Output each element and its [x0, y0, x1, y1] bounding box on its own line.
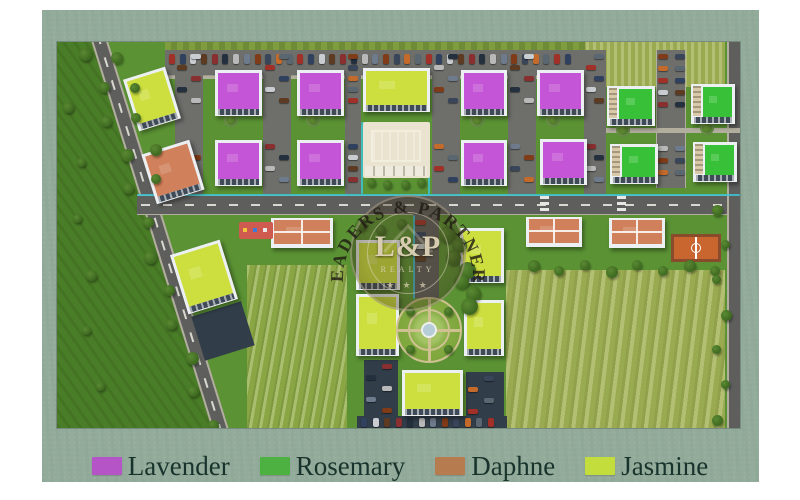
car [586, 65, 596, 70]
tree [712, 415, 723, 426]
car [458, 54, 464, 64]
parking-lot [364, 360, 398, 422]
parking-aisle [584, 50, 606, 194]
garden-fountain [421, 322, 437, 338]
palm-tree [401, 180, 410, 189]
car [465, 418, 471, 427]
court-surface [674, 237, 718, 259]
car [265, 166, 275, 171]
building-daphne [609, 218, 665, 248]
tree [712, 275, 721, 284]
car [675, 66, 685, 71]
car [511, 54, 517, 64]
rosemary-swatch [260, 457, 290, 475]
basketball-court [671, 234, 721, 262]
playground-equipment [243, 228, 247, 232]
car [191, 76, 201, 81]
building-jasmine [402, 370, 463, 416]
car [488, 418, 494, 427]
car [586, 166, 596, 171]
building-facade [610, 119, 652, 125]
tree [554, 266, 564, 276]
building-facade [218, 109, 259, 115]
legend-item-lavender: Lavender [92, 453, 230, 480]
court-circle [691, 243, 701, 253]
tree [63, 102, 74, 113]
daphne-swatch [435, 457, 465, 475]
legend-label: Daphne [471, 453, 555, 480]
tree [606, 266, 618, 278]
building-rosemary [610, 144, 658, 184]
building-jasmine [363, 68, 430, 112]
car [675, 90, 685, 95]
car [658, 66, 668, 71]
legend-item-rosemary: Rosemary [260, 453, 405, 480]
playground-equipment [263, 228, 267, 232]
car [348, 144, 358, 149]
car [501, 54, 507, 64]
car [348, 65, 358, 70]
car [404, 54, 410, 64]
parking-aisle [345, 50, 361, 194]
car [675, 158, 685, 163]
car [191, 98, 201, 103]
legend-label: Lavender [128, 453, 230, 480]
tree [144, 251, 157, 264]
car [265, 144, 275, 149]
tree [111, 52, 123, 64]
car [255, 54, 261, 64]
tree [208, 420, 219, 428]
tree [454, 274, 469, 289]
car [543, 54, 549, 64]
car [169, 54, 175, 64]
tree [528, 260, 540, 272]
garden-tree [444, 345, 453, 354]
car [372, 54, 378, 64]
building-facade [696, 175, 734, 181]
building-lavender [297, 70, 344, 116]
car [468, 409, 478, 414]
roof-lavender [464, 143, 504, 179]
building-facade [405, 409, 460, 415]
car [448, 76, 458, 81]
road-main-dash [141, 204, 740, 206]
car [524, 155, 534, 160]
car [366, 375, 376, 380]
car [658, 158, 668, 163]
brochure-card: LEADERS & PARTNERS L&P REALTY ★ ★ ★ [42, 10, 759, 482]
car [212, 54, 218, 64]
car [382, 386, 392, 391]
car [177, 65, 187, 70]
building-facade [300, 109, 341, 115]
tree [580, 260, 590, 270]
building-lavender [540, 139, 587, 185]
car [675, 54, 685, 59]
building-facade [366, 105, 427, 111]
car [407, 418, 413, 427]
roof-lavender [300, 143, 341, 179]
building-daphne [526, 217, 582, 247]
garden-tree [406, 307, 415, 316]
car [594, 54, 604, 59]
car [348, 87, 358, 92]
car [415, 256, 426, 261]
field-farm [247, 265, 347, 428]
roof-rosemary [705, 145, 734, 175]
roof-daphne [274, 220, 330, 244]
tree [99, 82, 110, 93]
building-facade [694, 117, 732, 123]
jasmine-swatch [585, 457, 615, 475]
utility-line [137, 194, 740, 196]
roof-lavender [543, 142, 584, 178]
car [348, 76, 358, 81]
palm-tree [367, 178, 376, 187]
car [297, 54, 303, 64]
crosswalk [617, 196, 626, 214]
building-rosemary [691, 84, 735, 124]
tree [73, 214, 82, 223]
car [383, 54, 389, 64]
tree [150, 144, 162, 156]
car [415, 232, 426, 237]
car [675, 170, 685, 175]
car [265, 54, 271, 64]
building-facade [359, 283, 397, 289]
car [594, 76, 604, 81]
car [394, 54, 400, 64]
car [448, 98, 458, 103]
car [565, 54, 571, 64]
car [191, 54, 201, 59]
legend: LavenderRosemaryDaphneJasmine [0, 448, 800, 484]
car [265, 65, 275, 70]
roof-lavender [540, 73, 581, 109]
tree [355, 219, 367, 231]
roof-rosemary [622, 147, 655, 177]
car [658, 78, 668, 83]
lavender-swatch [92, 457, 122, 475]
car [586, 144, 596, 149]
tree [121, 149, 134, 162]
tree [446, 250, 461, 265]
car [415, 220, 426, 225]
car [675, 78, 685, 83]
building-lavender [461, 140, 507, 186]
building-facade [464, 179, 504, 185]
legend-item-jasmine: Jasmine [585, 453, 708, 480]
car [415, 244, 426, 249]
tree [188, 386, 199, 397]
building-jasmine [356, 240, 400, 290]
tree [632, 260, 642, 270]
car [279, 177, 289, 182]
car [222, 54, 228, 64]
car [396, 418, 402, 427]
car [658, 54, 668, 59]
car [469, 54, 475, 64]
car [524, 54, 534, 59]
tree [79, 48, 92, 61]
car [430, 418, 436, 427]
building-lavender [215, 140, 262, 186]
car [279, 76, 289, 81]
tree [164, 285, 175, 296]
legend-label: Rosemary [296, 453, 405, 480]
building-rosemary [607, 86, 655, 126]
car [436, 54, 442, 64]
building-lavender [297, 140, 344, 186]
tree [130, 83, 140, 93]
parking-aisle [508, 50, 536, 194]
building-facade [464, 109, 504, 115]
tree [96, 382, 105, 391]
car [180, 54, 186, 64]
playground-equipment [253, 228, 257, 232]
parking-aisle [263, 50, 291, 194]
tree [721, 310, 732, 321]
garden-tree [406, 345, 415, 354]
building-facade [218, 179, 259, 185]
car [384, 418, 390, 427]
garden-tree [444, 307, 453, 316]
car [476, 418, 482, 427]
building-lavender [537, 70, 584, 116]
building-facade [359, 349, 396, 355]
roof-lavender [300, 73, 341, 109]
tree [82, 326, 91, 335]
car [434, 87, 444, 92]
car [510, 166, 520, 171]
parking-aisle [432, 50, 460, 194]
tree [166, 319, 177, 330]
tree [143, 217, 154, 228]
building-lavender [215, 70, 262, 116]
tree [123, 183, 134, 194]
car [348, 166, 358, 171]
car [510, 65, 520, 70]
tree [721, 380, 730, 389]
car [448, 54, 458, 59]
building-daphne [271, 218, 333, 248]
car [448, 177, 458, 182]
roof-rosemary [619, 89, 652, 119]
car [419, 418, 425, 427]
page: LEADERS & PARTNERS L&P REALTY ★ ★ ★ Lave… [0, 0, 800, 500]
car [586, 87, 596, 92]
car [510, 144, 520, 149]
car [308, 54, 314, 64]
tree [151, 174, 161, 184]
car [442, 418, 448, 427]
car [658, 170, 668, 175]
car [329, 54, 335, 64]
tree [684, 260, 696, 272]
car [524, 98, 534, 103]
field-meadow [506, 270, 725, 428]
pergola-row [365, 166, 427, 176]
roof-lavender [464, 73, 504, 109]
car [554, 54, 560, 64]
car [675, 102, 685, 107]
tree [101, 116, 112, 127]
car [319, 54, 325, 64]
car [415, 54, 421, 64]
roof-jasmine [366, 71, 427, 105]
car [348, 54, 358, 59]
roof-lavender [218, 73, 259, 109]
car [524, 177, 534, 182]
roof-jasmine [405, 373, 460, 409]
car [468, 387, 478, 392]
car [279, 98, 289, 103]
car [265, 87, 275, 92]
building-facade [467, 349, 501, 355]
car [201, 54, 207, 64]
car [484, 376, 494, 381]
tree [658, 266, 668, 276]
building-facade [540, 109, 581, 115]
building-jasmine [356, 294, 399, 356]
roof-lavender [218, 143, 259, 179]
car [453, 418, 459, 427]
palm-tree [417, 178, 426, 187]
car [524, 76, 534, 81]
playground [239, 222, 273, 239]
car [233, 54, 239, 64]
roof-daphne [612, 220, 662, 244]
site-plan-image [57, 42, 740, 428]
pool [371, 130, 421, 162]
tree [712, 345, 721, 354]
car [348, 155, 358, 160]
roof-daphne [529, 219, 579, 243]
roof-jasmine [359, 297, 396, 349]
car [279, 155, 289, 160]
car [434, 65, 444, 70]
roof-rosemary [703, 87, 732, 117]
car [348, 177, 358, 182]
building-balconies [693, 86, 701, 116]
car [479, 54, 485, 64]
building-facade [300, 179, 341, 185]
car [594, 98, 604, 103]
car [658, 102, 668, 107]
building-facade [543, 178, 584, 184]
car [382, 364, 392, 369]
car [510, 87, 520, 92]
car [177, 87, 187, 92]
garden-circle [396, 297, 462, 363]
tree [721, 240, 730, 249]
tree [131, 113, 141, 123]
tree [86, 270, 97, 281]
car [675, 146, 685, 151]
car [448, 155, 458, 160]
tree [376, 225, 386, 235]
tree [712, 205, 723, 216]
car [434, 144, 444, 149]
roof-jasmine [359, 243, 397, 283]
legend-label: Jasmine [621, 453, 708, 480]
tree [186, 352, 199, 365]
car [373, 418, 379, 427]
car [279, 54, 289, 59]
building-rosemary [693, 142, 737, 182]
building-balconies [612, 146, 620, 176]
car [594, 177, 604, 182]
car [434, 166, 444, 171]
building-balconies [609, 88, 617, 118]
car [484, 398, 494, 403]
car [362, 54, 368, 64]
tree [461, 298, 478, 315]
tree [397, 219, 407, 229]
car [426, 54, 432, 64]
car [594, 155, 604, 160]
car [348, 98, 358, 103]
car [658, 146, 668, 151]
building-lavender [461, 70, 507, 116]
crosswalk [540, 196, 549, 214]
palm-tree [383, 180, 392, 189]
car [658, 90, 668, 95]
legend-item-daphne: Daphne [435, 453, 555, 480]
building-balconies [695, 144, 703, 174]
car [244, 54, 250, 64]
building-facade [613, 177, 655, 183]
car [361, 418, 367, 427]
car [340, 54, 346, 64]
tree [77, 158, 86, 167]
car [490, 54, 496, 64]
car [382, 408, 392, 413]
car [366, 397, 376, 402]
